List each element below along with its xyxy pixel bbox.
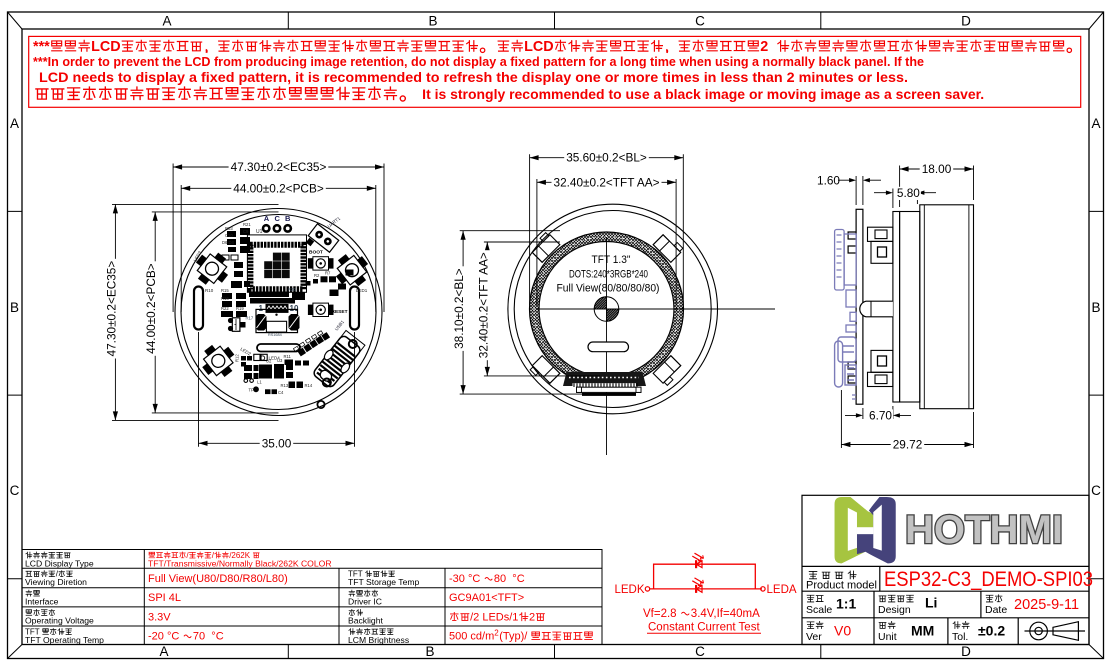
svg-text:UART1: UART1 xyxy=(327,216,342,229)
svg-text:ESP32-C3_DEMO-SPI03: ESP32-C3_DEMO-SPI03 xyxy=(884,568,1093,591)
svg-text:R22: R22 xyxy=(221,306,229,311)
svg-text:B: B xyxy=(1091,300,1100,315)
svg-text:B: B xyxy=(425,644,434,659)
svg-text:±0.2: ±0.2 xyxy=(978,622,1005,638)
svg-text:MM: MM xyxy=(911,622,934,638)
svg-text:B: B xyxy=(10,300,19,315)
svg-text:(Typ)/: (Typ)/ xyxy=(499,631,528,643)
svg-text:Unit: Unit xyxy=(878,631,897,643)
svg-text:R11: R11 xyxy=(284,354,292,359)
svg-text:Operating Voltage: Operating Voltage xyxy=(25,616,94,626)
svg-text:Driver IC: Driver IC xyxy=(348,597,382,607)
svg-text:SPI 4L: SPI 4L xyxy=(148,592,181,604)
svg-text:Ver: Ver xyxy=(806,631,822,643)
svg-text:TFT Storage Temp: TFT Storage Temp xyxy=(348,577,420,587)
svg-text:A: A xyxy=(10,116,19,131)
svg-text:6.70: 6.70 xyxy=(869,409,892,423)
svg-text:TFT 1.3": TFT 1.3" xyxy=(592,254,631,266)
svg-text:R13: R13 xyxy=(281,383,289,388)
svg-text:Interface: Interface xyxy=(25,597,59,607)
svg-text:Vf=2.8: Vf=2.8 xyxy=(643,608,677,620)
svg-text:2: 2 xyxy=(760,39,768,55)
svg-text:35.00: 35.00 xyxy=(262,436,292,450)
svg-text:R20: R20 xyxy=(288,287,296,292)
svg-text:2025-9-11: 2025-9-11 xyxy=(1014,597,1079,613)
svg-text:80: 80 xyxy=(494,573,506,585)
svg-text:LED1: LED1 xyxy=(356,288,368,293)
svg-text:2: 2 xyxy=(529,611,535,623)
svg-text:5.80: 5.80 xyxy=(897,186,920,200)
svg-text:TFT Operating Temp: TFT Operating Temp xyxy=(25,635,104,645)
svg-text:RS1684: RS1684 xyxy=(268,333,282,337)
svg-text:B: B xyxy=(285,214,291,223)
svg-text:C10: C10 xyxy=(225,233,233,238)
svg-text:Full View(80/80/80/80): Full View(80/80/80/80) xyxy=(557,283,660,295)
svg-text:°C: °C xyxy=(512,573,524,585)
svg-text:R16: R16 xyxy=(221,296,229,301)
svg-text:70: 70 xyxy=(193,631,205,643)
svg-text:Li: Li xyxy=(925,595,937,611)
svg-text:3.3V: 3.3V xyxy=(148,611,171,623)
svg-text:***In order to prevent the LCD: ***In order to prevent the LCD from prod… xyxy=(33,55,924,69)
svg-text:R17: R17 xyxy=(246,316,254,321)
svg-text:Full View(U80/D80/R80/L80): Full View(U80/D80/R80/L80) xyxy=(148,573,288,585)
svg-text:29.72: 29.72 xyxy=(893,438,923,452)
svg-text:44.00±0.2<PCB>: 44.00±0.2<PCB> xyxy=(233,181,324,195)
svg-text:LCD: LCD xyxy=(91,39,120,55)
svg-text:D: D xyxy=(961,644,971,659)
svg-text:1: 1 xyxy=(259,304,264,313)
svg-text:A: A xyxy=(162,14,171,29)
svg-text:L1: L1 xyxy=(257,380,262,385)
svg-text:R21: R21 xyxy=(243,222,251,227)
svg-text:Date: Date xyxy=(985,604,1007,616)
svg-text:A: A xyxy=(1091,116,1100,131)
svg-text:U1: U1 xyxy=(256,229,263,235)
svg-text:3.4V,If=40mA: 3.4V,If=40mA xyxy=(691,608,760,620)
svg-text:Tol.: Tol. xyxy=(952,631,968,643)
svg-text:1.60: 1.60 xyxy=(817,174,840,188)
svg-text:-20: -20 xyxy=(148,631,164,643)
svg-text:R2: R2 xyxy=(314,273,320,278)
svg-text:R14: R14 xyxy=(305,383,313,388)
svg-text:47.30±0.2<EC35>: 47.30±0.2<EC35> xyxy=(104,261,118,357)
svg-text:Scale: Scale xyxy=(806,604,832,616)
svg-text:C: C xyxy=(10,483,20,498)
svg-text:LEDA: LEDA xyxy=(767,584,797,596)
svg-text:D6 D4: D6 D4 xyxy=(222,240,235,245)
svg-text:500 cd/m: 500 cd/m xyxy=(449,631,494,643)
svg-text:LCM Brightness: LCM Brightness xyxy=(348,635,409,645)
svg-text:A: A xyxy=(264,214,270,223)
svg-text:RESET: RESET xyxy=(332,309,348,315)
svg-text:32.40±0.2<TFT AA>: 32.40±0.2<TFT AA> xyxy=(476,252,490,358)
svg-text:B: B xyxy=(428,14,437,29)
svg-text:-30: -30 xyxy=(449,573,465,585)
svg-text:C: C xyxy=(695,644,705,659)
svg-text:°C: °C xyxy=(468,573,480,585)
svg-text:47.30±0.2<EC35>: 47.30±0.2<EC35> xyxy=(231,160,327,174)
svg-text:TFT/Transmissive/Normally Blac: TFT/Transmissive/Normally Black/262K COL… xyxy=(148,559,332,569)
svg-text:R03: R03 xyxy=(225,226,233,231)
svg-text:C4: C4 xyxy=(278,390,284,395)
svg-text:38.10±0.2<BL>: 38.10±0.2<BL> xyxy=(452,268,466,349)
svg-text:LCD Display Type: LCD Display Type xyxy=(25,558,94,568)
svg-text:C: C xyxy=(695,14,705,29)
svg-text:LCD needs to display a fixed p: LCD needs to display a fixed pattern, it… xyxy=(39,70,908,85)
svg-text:HOTHMI: HOTHMI xyxy=(905,508,1063,552)
svg-text:18.00: 18.00 xyxy=(922,162,952,176)
svg-text:°C: °C xyxy=(211,631,223,643)
svg-text:R19: R19 xyxy=(236,306,244,311)
svg-text:C9: C9 xyxy=(243,229,249,234)
svg-text:LEDK: LEDK xyxy=(614,584,644,596)
svg-text:R12: R12 xyxy=(235,354,240,362)
svg-text:A: A xyxy=(159,644,168,659)
svg-text:USB1: USB1 xyxy=(334,319,345,332)
svg-text:C: C xyxy=(1091,483,1101,498)
svg-text:Backlight: Backlight xyxy=(348,616,383,626)
svg-text:R8: R8 xyxy=(331,284,337,289)
svg-text:BOOT: BOOT xyxy=(309,250,323,256)
svg-text:C: C xyxy=(274,214,280,223)
svg-text:LED2: LED2 xyxy=(240,347,253,357)
svg-text:***: *** xyxy=(33,39,50,55)
svg-text:TP: TP xyxy=(249,388,255,393)
svg-text:V0: V0 xyxy=(834,622,851,638)
svg-text:It is strongly recommended to: It is strongly recommended to use a blac… xyxy=(422,87,984,102)
svg-text:32.40±0.2<TFT AA>: 32.40±0.2<TFT AA> xyxy=(554,175,660,189)
svg-text:/2 LEDs/1: /2 LEDs/1 xyxy=(470,611,518,623)
svg-text:R15: R15 xyxy=(221,288,229,293)
svg-text:Product model: Product model xyxy=(806,580,877,592)
svg-text:GC9A01<TFT>: GC9A01<TFT> xyxy=(449,592,524,604)
svg-text:D: D xyxy=(961,14,971,29)
svg-text:LCD: LCD xyxy=(524,39,553,55)
svg-text:LED4: LED4 xyxy=(269,356,281,361)
svg-text:R7: R7 xyxy=(325,271,331,276)
svg-text:°C: °C xyxy=(167,631,179,643)
svg-text:44.00±0.2<PCB>: 44.00±0.2<PCB> xyxy=(144,263,158,354)
svg-text:1:1: 1:1 xyxy=(836,596,856,612)
svg-text:Viewing Diretion: Viewing Diretion xyxy=(25,577,87,587)
svg-text:35.60±0.2<BL>: 35.60±0.2<BL> xyxy=(566,151,647,165)
svg-text:Design: Design xyxy=(878,604,911,616)
svg-text:DOTS:240*3RGB*240: DOTS:240*3RGB*240 xyxy=(569,269,648,281)
svg-text:Constant Current Test: Constant Current Test xyxy=(648,622,760,634)
svg-text:R10: R10 xyxy=(205,288,214,293)
